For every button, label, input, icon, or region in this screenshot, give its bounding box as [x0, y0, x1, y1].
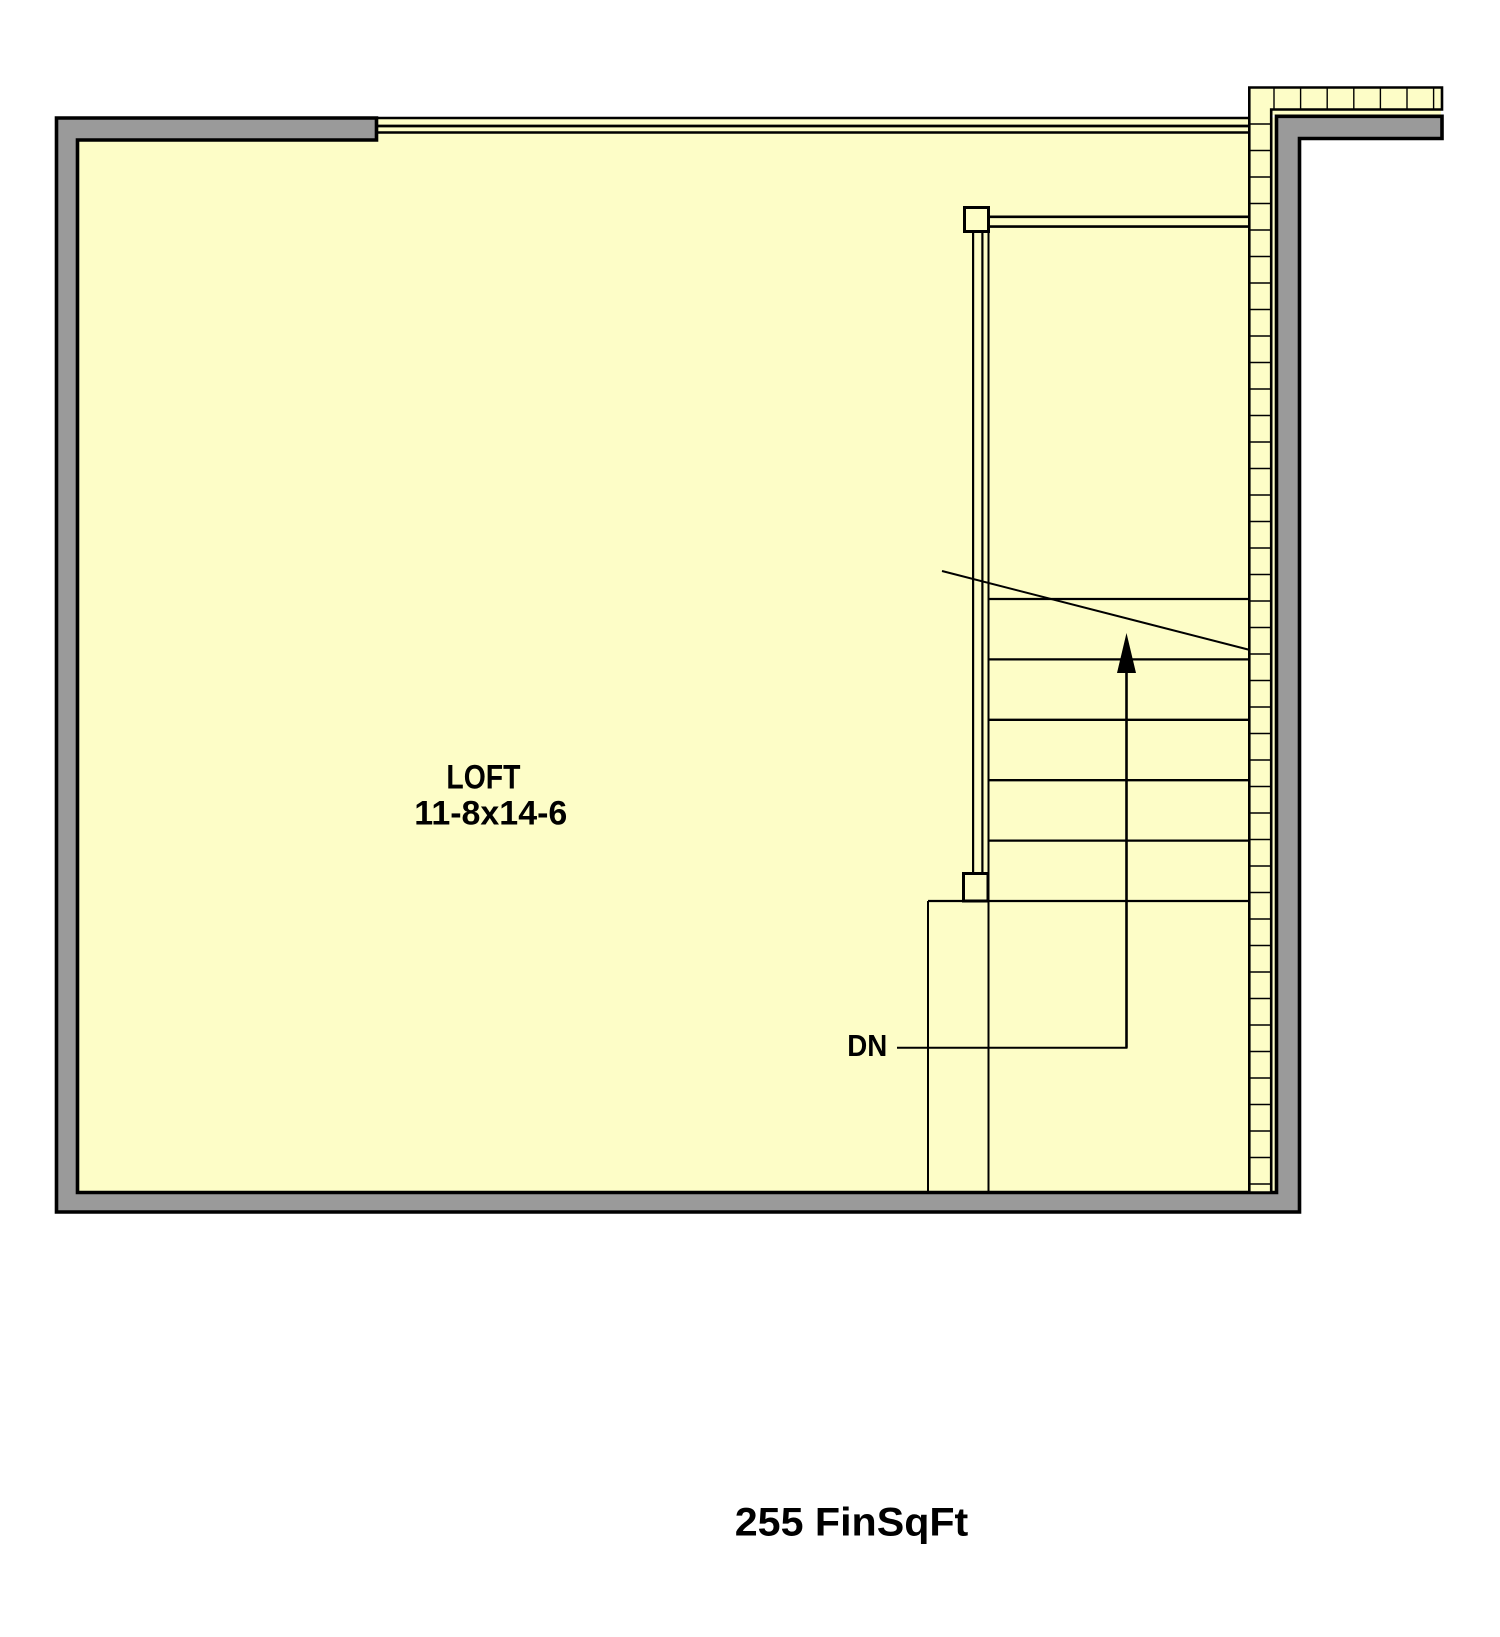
svg-text:LOFT: LOFT	[446, 759, 520, 797]
svg-text:255 FinSqFt: 255 FinSqFt	[735, 1501, 969, 1545]
svg-text:DN: DN	[847, 1028, 887, 1063]
svg-text:11-8x14-6: 11-8x14-6	[414, 795, 567, 833]
